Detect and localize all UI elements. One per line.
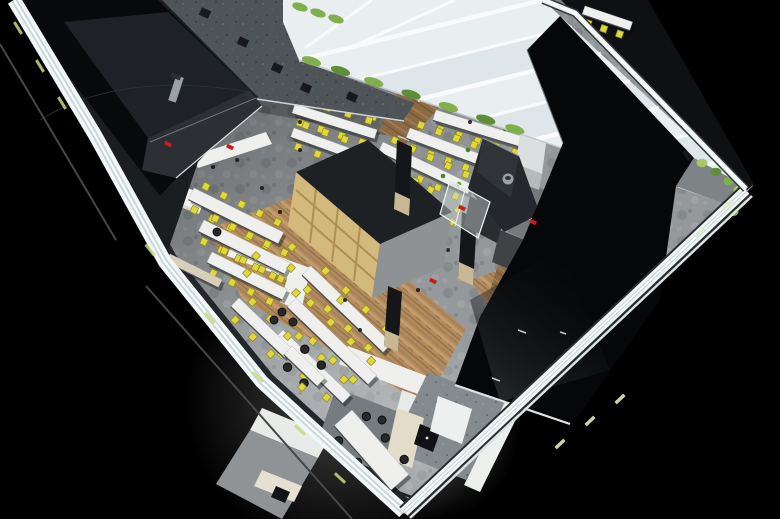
black-chair xyxy=(378,416,386,424)
black-chair xyxy=(270,316,278,324)
black-chair xyxy=(362,412,370,420)
render-canvas xyxy=(0,0,780,519)
chimney-opening xyxy=(505,176,511,180)
black-chair xyxy=(213,228,221,236)
black-chair xyxy=(317,361,325,369)
corner-plant xyxy=(711,168,722,176)
corner-plant xyxy=(697,159,708,167)
cooktop-knob xyxy=(426,437,429,440)
pendant-light xyxy=(298,148,302,152)
black-chair xyxy=(283,363,291,371)
table-plant xyxy=(441,174,446,179)
pendant-light xyxy=(468,120,472,124)
pendant-light xyxy=(235,158,239,162)
table-plant xyxy=(466,148,471,153)
pendant-light xyxy=(358,328,362,332)
pendant-light xyxy=(278,210,282,214)
pendant-light xyxy=(416,288,420,292)
black-chair xyxy=(278,308,286,316)
pendant-light xyxy=(298,120,302,124)
pendant-light xyxy=(260,186,264,190)
black-chair xyxy=(400,455,408,463)
black-chair xyxy=(301,345,309,353)
office-cutaway-render: 3D aerial cutaway rendering of a long op… xyxy=(0,0,780,519)
black-chair xyxy=(289,318,297,326)
black-chair xyxy=(381,434,389,442)
pendant-light xyxy=(446,248,450,252)
pendant-light xyxy=(211,165,215,169)
pendant-light xyxy=(343,298,347,302)
